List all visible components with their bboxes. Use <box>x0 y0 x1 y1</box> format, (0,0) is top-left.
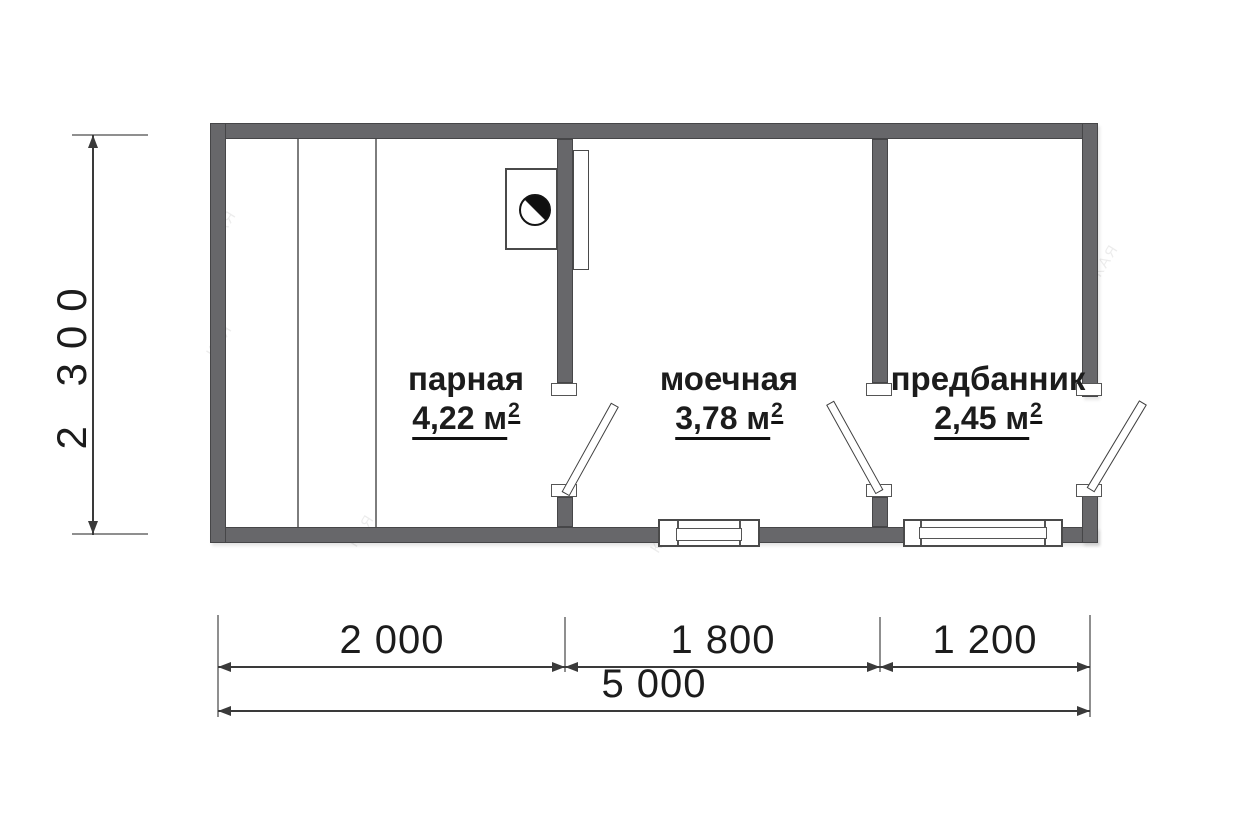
room-area-steam-room: 4,22 м2 <box>412 402 520 440</box>
floor-plan: КАЯ КАЯ КАЯ КАЯ КАЯ КАЯ парная 4,22 м2 <box>0 0 1248 832</box>
exterior-wall-right-upper <box>1082 123 1098 397</box>
room-label-anteroom: предбанник <box>891 362 1086 395</box>
door-jamb <box>866 383 892 396</box>
shelf <box>573 150 589 270</box>
partition-wall-2-upper <box>872 139 888 383</box>
room-label-steam-room: парная <box>408 362 524 395</box>
room-area-value: 2,45 м <box>934 402 1029 440</box>
stove-burner-icon <box>519 194 551 226</box>
dim-label-segment-1: 2 000 <box>339 620 444 660</box>
partition-wall-2-lower <box>872 497 888 527</box>
arrow-left-icon <box>218 662 231 672</box>
room-area-value: 4,22 м <box>412 402 507 440</box>
arrow-right-icon <box>552 662 565 672</box>
room-area-washing-room: 3,78 м2 <box>675 402 783 440</box>
arrow-right-icon <box>1077 706 1090 716</box>
dim-label-segment-3: 1 200 <box>932 620 1037 660</box>
bench-line-1 <box>297 139 299 527</box>
room-area-sup: 2 <box>508 400 520 424</box>
arrow-right-icon <box>1077 662 1090 672</box>
dim-label-total: 5 000 <box>601 664 706 704</box>
arrow-left-icon <box>565 662 578 672</box>
partition-wall-1-lower <box>557 497 573 527</box>
room-area-value: 3,78 м <box>675 402 770 440</box>
room-area-anteroom: 2,45 м2 <box>934 402 1042 440</box>
dim-label-segment-2: 1 800 <box>670 620 775 660</box>
arrow-up-icon <box>88 135 98 148</box>
room-area-sup: 2 <box>771 400 783 424</box>
window-sash <box>676 528 742 541</box>
door-leaf-steam-room <box>562 403 619 497</box>
window-sash <box>919 527 1047 539</box>
room-area-sup: 2 <box>1030 400 1042 424</box>
exterior-wall-left <box>210 123 226 543</box>
partition-wall-1-upper <box>557 139 573 383</box>
arrow-left-icon <box>880 662 893 672</box>
dim-extension-top <box>72 134 148 136</box>
exterior-wall-top <box>210 123 1098 139</box>
dim-extension-bottom <box>72 533 148 535</box>
door-leaf-entrance <box>1087 400 1147 492</box>
door-jamb <box>551 383 577 396</box>
dim-label-height: 2 300 <box>51 274 93 449</box>
room-label-washing-room: моечная <box>660 362 798 395</box>
arrow-right-icon <box>867 662 880 672</box>
dimension-line-total <box>218 710 1090 712</box>
bench-line-2 <box>375 139 377 527</box>
arrow-left-icon <box>218 706 231 716</box>
arrow-down-icon <box>88 521 98 534</box>
door-leaf-anteroom <box>826 401 883 495</box>
